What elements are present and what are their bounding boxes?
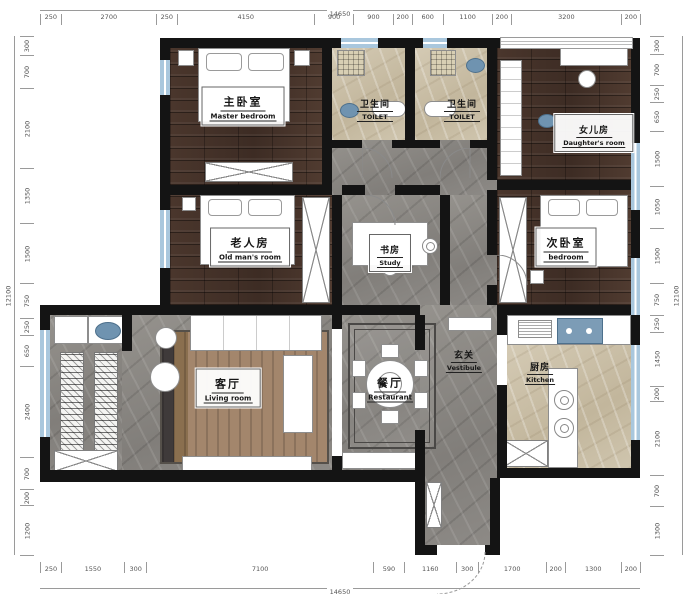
stove-burner	[554, 390, 574, 410]
storage-rack	[60, 352, 84, 464]
shower-area	[337, 50, 365, 76]
dining-chair	[352, 360, 366, 377]
wall	[160, 38, 341, 48]
kitchen-sink	[557, 318, 603, 344]
pillow	[248, 199, 282, 216]
door-arc	[497, 255, 528, 286]
room-label-dining: 餐厅 Restaurant	[367, 372, 413, 403]
wall	[322, 48, 332, 185]
wall	[490, 478, 500, 545]
bay-window	[500, 37, 633, 49]
dim-segment: 250	[650, 85, 664, 102]
dim-segment: 250	[20, 318, 34, 335]
window	[160, 210, 170, 268]
dim-bottom-total: 14650	[40, 580, 640, 589]
window	[423, 38, 447, 48]
dim-segment: 200	[492, 14, 511, 25]
dim-segment: 900	[353, 14, 392, 25]
wall	[405, 48, 415, 140]
second-wardrobe	[499, 197, 527, 303]
dim-segment: 1700	[478, 562, 546, 573]
dim-segment: 590	[373, 562, 404, 573]
dim-segment: 300	[650, 36, 664, 54]
shower-area	[430, 50, 456, 76]
dining-chair	[414, 360, 428, 377]
daughter-chair	[578, 70, 596, 88]
dim-segment: 1450	[650, 332, 664, 386]
wall	[485, 545, 500, 555]
dim-top-total: 14650	[40, 2, 640, 11]
dim-segment: 750	[20, 283, 34, 317]
floor-plan-canvas: 14650 2502700250415090090020060011002003…	[0, 0, 687, 604]
window	[160, 60, 170, 95]
dim-segment: 1500	[650, 131, 664, 186]
wall	[631, 315, 640, 345]
wall	[40, 305, 420, 315]
dim-top-segments: 2502700250415090090020060011002003200200	[40, 14, 641, 25]
dim-segment: 1500	[650, 228, 664, 283]
wall	[470, 140, 497, 148]
dim-segment: 2700	[61, 14, 156, 25]
dining-chair	[381, 410, 399, 424]
wall	[332, 456, 342, 470]
dim-segment: 1500	[20, 223, 34, 283]
dim-segment: 650	[650, 102, 664, 131]
dim-segment: 1300	[565, 562, 621, 573]
hall-cabinet	[426, 482, 442, 528]
sideboard	[342, 452, 424, 469]
room-label-vestibule: 玄关 Vestibule	[446, 343, 482, 373]
dim-right-segments: 3007002506501500105015007502501450200210…	[650, 36, 664, 556]
storage-cabinet	[54, 450, 118, 472]
dim-segment: 1200	[20, 505, 34, 555]
room-label-kitchen: 厨房 Kitchen	[525, 355, 555, 385]
wall	[497, 468, 640, 478]
dim-segment: 250	[650, 315, 664, 332]
kitchen-cabinet	[504, 440, 548, 467]
window	[341, 38, 378, 48]
dim-segment: 600	[412, 14, 443, 25]
vent-hood	[518, 320, 552, 338]
room-label-living: 客厅 Living room	[196, 369, 261, 408]
daughter-desk	[560, 48, 628, 66]
side-table	[155, 327, 177, 349]
dim-segment: 2400	[20, 366, 34, 457]
wall	[160, 185, 332, 195]
room-label-study: 书房 Study	[369, 234, 411, 272]
dim-segment: 7100	[146, 562, 373, 573]
room-name-zh: 主卧室	[220, 94, 265, 112]
room-label-daughter: 女儿房 Daughter's room	[554, 114, 633, 152]
oldman-wardrobe	[302, 197, 330, 303]
wall	[497, 180, 640, 190]
dim-segment: 300	[124, 562, 146, 573]
dim-bottom-segments: 25015503007100590116030017002001300200	[40, 562, 641, 573]
armchair	[150, 362, 180, 392]
pillow	[248, 53, 284, 71]
wall	[332, 195, 342, 305]
shoe-cabinet	[448, 317, 492, 331]
dim-segment: 900	[314, 14, 353, 25]
ceiling-symbol	[422, 238, 438, 254]
room-name-en: Master bedroom	[210, 113, 277, 122]
nightstand	[530, 270, 544, 284]
wall	[497, 315, 507, 335]
wall	[497, 385, 507, 468]
dining-chair	[352, 392, 366, 409]
master-dresser	[205, 162, 293, 182]
wall	[415, 545, 437, 555]
dim-segment: 700	[20, 457, 34, 490]
door-arc	[440, 148, 471, 179]
washing-machine	[54, 316, 88, 344]
dim-segment: 750	[650, 283, 664, 315]
dim-segment: 1100	[443, 14, 492, 25]
wall	[378, 38, 423, 48]
dining-chair	[381, 344, 399, 358]
dim-segment: 1050	[650, 186, 664, 227]
dim-segment: 650	[20, 335, 34, 366]
door-arc	[365, 195, 396, 226]
dim-segment: 200	[393, 14, 412, 25]
daughter-wardrobe	[500, 60, 522, 176]
pillow	[206, 53, 242, 71]
wall	[497, 305, 640, 315]
storage-rack	[94, 352, 118, 464]
dim-segment: 2100	[650, 401, 664, 475]
pillow	[208, 199, 242, 216]
wall	[160, 48, 170, 60]
dim-left-total: 12100	[2, 36, 15, 555]
wall	[415, 482, 425, 545]
window	[631, 345, 640, 440]
wall	[332, 140, 362, 148]
room-label-toilet1: 卫生间 TOILET	[357, 92, 393, 122]
pillow	[586, 199, 618, 216]
dim-segment: 200	[621, 14, 640, 25]
nightstand	[178, 50, 194, 66]
nightstand	[294, 50, 310, 66]
wall	[487, 190, 497, 255]
coffee-table	[283, 355, 313, 433]
wall	[40, 470, 420, 482]
dining-chair	[414, 392, 428, 409]
wall	[395, 185, 440, 195]
dim-segment: 1160	[404, 562, 456, 573]
room-label-second: 次卧室 bedroom	[536, 228, 597, 267]
dim-segment: 700	[650, 54, 664, 85]
dim-left-segments: 3007002100135015007502506502400700200120…	[20, 36, 34, 556]
dim-segment: 200	[20, 489, 34, 505]
wall	[487, 38, 497, 180]
tv-cabinet	[182, 456, 312, 471]
wall	[415, 315, 425, 350]
dim-segment: 250	[40, 14, 61, 25]
wall	[332, 315, 342, 329]
wall	[342, 185, 365, 195]
room-label-toilet2: 卫生间 TOILET	[444, 92, 480, 122]
dim-segment: 300	[20, 36, 34, 55]
pillow	[548, 199, 580, 216]
window	[631, 143, 640, 210]
room-label-master: 主卧室 Master bedroom	[202, 87, 285, 126]
dim-right-total: 12100	[670, 36, 683, 555]
dim-segment: 200	[621, 562, 640, 573]
window	[631, 258, 640, 315]
dim-segment: 200	[546, 562, 565, 573]
stove-burner	[554, 418, 574, 438]
nightstand	[182, 197, 196, 211]
wall	[631, 210, 640, 258]
window	[40, 330, 50, 437]
wall	[392, 140, 440, 148]
dim-segment: 250	[156, 14, 177, 25]
dim-segment: 2100	[20, 88, 34, 168]
wall	[440, 195, 450, 305]
living-sofa	[190, 315, 322, 351]
dim-segment: 3200	[511, 14, 621, 25]
dim-segment: 4150	[177, 14, 314, 25]
toilet-bowl	[466, 58, 485, 73]
wall	[122, 315, 132, 351]
wall	[415, 430, 425, 482]
wash-basin	[95, 322, 121, 340]
dim-segment: 700	[20, 55, 34, 88]
dim-segment: 200	[650, 386, 664, 401]
door-arc	[362, 148, 393, 179]
dim-segment: 1550	[61, 562, 124, 573]
dim-segment: 1350	[20, 168, 34, 223]
dim-segment: 250	[40, 562, 61, 573]
dim-segment: 300	[456, 562, 478, 573]
wall	[487, 285, 497, 305]
room-label-oldman: 老人房 Old man's room	[210, 228, 290, 267]
dim-segment: 700	[650, 475, 664, 506]
dim-segment: 1300	[650, 506, 664, 555]
